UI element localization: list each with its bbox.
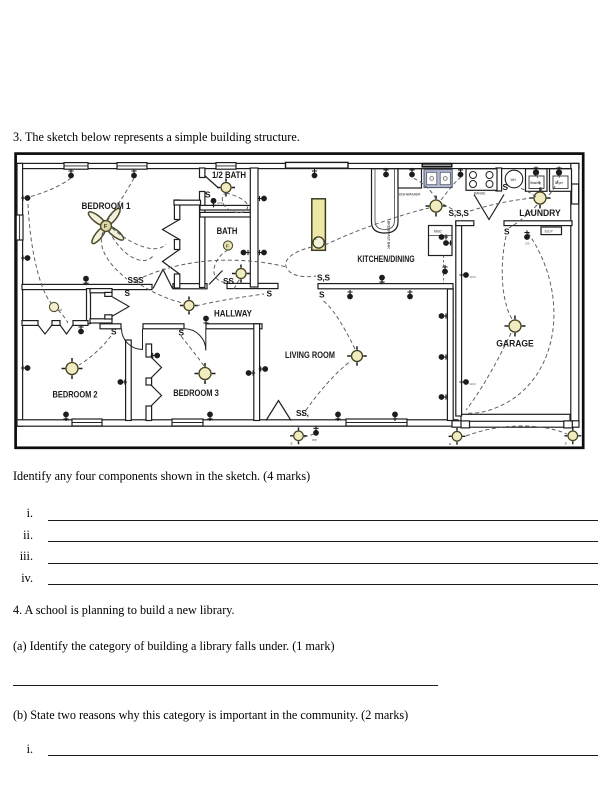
svg-text:S: S	[205, 190, 211, 200]
svg-text:MISC: MISC	[434, 230, 443, 234]
svg-text:BATH: BATH	[217, 225, 238, 236]
svg-text:S.E.P: S.E.P	[545, 230, 553, 234]
svg-text:GFCI: GFCI	[470, 382, 476, 386]
svg-text:WH: WH	[511, 178, 517, 182]
svg-text:WP: WP	[312, 438, 317, 442]
svg-text:S,S,S: S,S,S	[449, 208, 470, 218]
svg-text:220: 220	[525, 242, 530, 246]
svg-text:BEDROOM 1: BEDROOM 1	[82, 200, 131, 211]
svg-text:BEDROOM 3: BEDROOM 3	[173, 387, 219, 398]
svg-text:s: s	[565, 440, 567, 445]
svg-text:S: S	[111, 327, 117, 337]
svg-text:s: s	[291, 440, 293, 445]
svg-text:LAUNDRY: LAUNDRY	[519, 208, 560, 218]
svg-text:s: s	[449, 441, 451, 446]
svg-text:GARAGE: GARAGE	[496, 338, 534, 348]
svg-text:S: S	[267, 289, 273, 299]
svg-text:S,S: S,S	[317, 273, 330, 283]
svg-text:F: F	[226, 243, 229, 248]
svg-text:SSS: SSS	[128, 275, 145, 285]
svg-text:KITCHEN/DINING: KITCHEN/DINING	[357, 254, 414, 264]
svg-text:SS: SS	[223, 276, 234, 286]
svg-text:BREAKFAST BAR: BREAKFAST BAR	[387, 221, 391, 249]
svg-text:DISHWASHER: DISHWASHER	[399, 192, 421, 196]
svg-text:HALLWAY: HALLWAY	[214, 308, 252, 319]
svg-text:BEDROOM 2: BEDROOM 2	[53, 389, 98, 400]
svg-text:1/2 BATH: 1/2 BATH	[212, 169, 246, 180]
svg-text:RANGE: RANGE	[474, 192, 485, 196]
svg-text:GFCI: GFCI	[217, 201, 223, 205]
svg-text:GFCI: GFCI	[470, 275, 476, 279]
svg-text:FL: FL	[314, 236, 318, 240]
svg-text:S: S	[319, 290, 325, 300]
svg-text:S: S	[125, 288, 131, 298]
svg-text:S: S	[503, 182, 509, 192]
svg-text:LIVING ROOM: LIVING ROOM	[285, 349, 335, 360]
